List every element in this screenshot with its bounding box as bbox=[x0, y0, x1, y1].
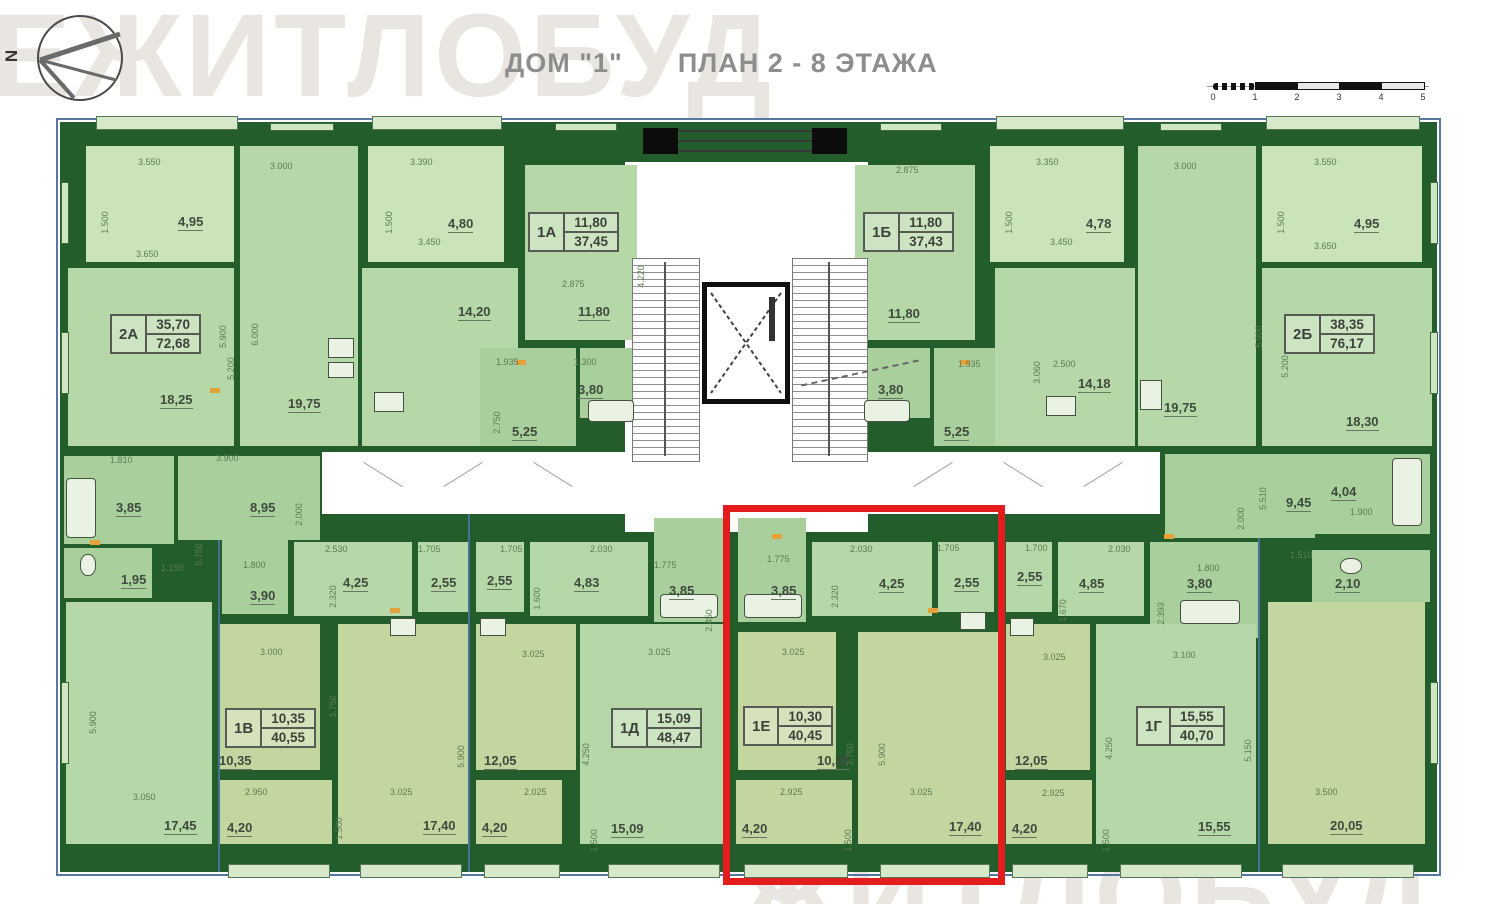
balcony-ledge bbox=[1012, 864, 1088, 878]
dimension-label: 1.500 bbox=[385, 211, 394, 234]
bathtub-icon bbox=[588, 400, 634, 422]
bathtub-icon bbox=[1180, 600, 1240, 624]
toilet-icon bbox=[80, 554, 96, 576]
entrance-canopy bbox=[678, 130, 812, 160]
dimension-label: 4.250 bbox=[582, 743, 591, 766]
north-label: N bbox=[2, 50, 22, 62]
apartment-stat-box: 1Б 11,8037,43 bbox=[863, 212, 954, 252]
room-area: 15,55 bbox=[1171, 708, 1223, 727]
balcony-ledge bbox=[484, 864, 560, 878]
dimension-label: 3.450 bbox=[1050, 238, 1073, 247]
bathtub-icon bbox=[1392, 458, 1422, 526]
dimension-label: 2.030 bbox=[590, 545, 613, 554]
stove-icon bbox=[328, 338, 354, 358]
scale-tick: 2 bbox=[1294, 92, 1299, 102]
scale-bar: 0 1 2 3 4 5 bbox=[1213, 80, 1423, 102]
balcony-ledge bbox=[1266, 116, 1420, 130]
dimension-label: 4.250 bbox=[1105, 737, 1114, 760]
room-area-label: 11,80 bbox=[888, 306, 920, 323]
dimension-label: 2.750 bbox=[493, 411, 502, 434]
dimension-label: 1.900 bbox=[1350, 508, 1373, 517]
apartment-stat-box: 2Б 38,3576,17 bbox=[1284, 314, 1375, 354]
dimension-label: 1.810 bbox=[110, 456, 133, 465]
room-area-label: 10,35 bbox=[219, 753, 252, 770]
apt2b-balcony bbox=[1262, 146, 1422, 262]
room-area-label: 14,18 bbox=[1078, 376, 1111, 393]
fridge-icon bbox=[1140, 380, 1162, 410]
dimension-label: 6.000 bbox=[251, 323, 260, 346]
room-area-label: 20,05 bbox=[1330, 818, 1363, 835]
room-area-label: 4,85 bbox=[1079, 576, 1104, 593]
dimension-label: 2.000 bbox=[295, 503, 304, 526]
room-area-label: 1,95 bbox=[121, 572, 146, 589]
room-area-label: 17,40 bbox=[423, 818, 456, 835]
balcony-ledge bbox=[1120, 864, 1242, 878]
dimension-label: 2.393 bbox=[1157, 602, 1166, 625]
dimension-label: 1.705 bbox=[500, 545, 523, 554]
room-area-label: 17,45 bbox=[164, 818, 197, 835]
room-area: 38,35 bbox=[1321, 316, 1373, 335]
total-area: 48,47 bbox=[648, 729, 700, 746]
courtyard-left bbox=[322, 452, 625, 514]
room-area-label: 3,80 bbox=[878, 382, 903, 399]
room-area: 35,70 bbox=[147, 316, 199, 335]
dimension-label: 5.150 bbox=[1244, 739, 1253, 762]
apartment-id: 2А bbox=[112, 316, 145, 352]
apt1v-bedroom bbox=[220, 624, 320, 770]
dimension-label: 2.530 bbox=[325, 545, 348, 554]
elevator-shaft bbox=[702, 282, 790, 404]
apartment-id: 1Г bbox=[1138, 708, 1169, 744]
dimension-label: 1.700 bbox=[1025, 544, 1048, 553]
balcony-ledge bbox=[360, 864, 462, 878]
scale-tick: 0 bbox=[1210, 92, 1215, 102]
apartment-id: 1Д bbox=[613, 710, 646, 746]
dimension-label: 3.025 bbox=[522, 650, 545, 659]
house-title: ДОМ "1" bbox=[505, 48, 623, 78]
dimension-label: 3.025 bbox=[1043, 653, 1066, 662]
room-area-label: 2,55 bbox=[487, 573, 512, 590]
room-area-label: 2,55 bbox=[1017, 569, 1042, 586]
dimension-label: 1.935 bbox=[958, 360, 981, 369]
balcony-ledge bbox=[608, 864, 720, 878]
apartment-stat-box: 1В 10,3540,55 bbox=[225, 708, 316, 748]
apt1v-living-room bbox=[338, 624, 468, 844]
dimension-label: 1.510 bbox=[1290, 551, 1313, 560]
room-area-label: 18,30 bbox=[1346, 414, 1379, 431]
dimension-label: 1.800 bbox=[243, 561, 266, 570]
scale-dotted-segment bbox=[1213, 83, 1255, 90]
total-area: 37,45 bbox=[565, 233, 617, 250]
room-area-label: 4,20 bbox=[1012, 821, 1037, 838]
dimension-label: 3.350 bbox=[1036, 158, 1059, 167]
dimension-label: 1.500 bbox=[590, 829, 599, 852]
dimension-label: 1.705 bbox=[418, 545, 441, 554]
room-area-label: 9,45 bbox=[1286, 495, 1311, 512]
apartment-id: 2Б bbox=[1286, 316, 1319, 352]
apartment-stat-box: 1Г 15,5540,70 bbox=[1136, 706, 1225, 746]
dimension-label: 2.875 bbox=[896, 166, 919, 175]
room-area-label: 4,20 bbox=[227, 820, 252, 837]
dimension-label: 3.450 bbox=[418, 238, 441, 247]
total-area: 72,68 bbox=[147, 335, 199, 352]
dimension-label: 1.670 bbox=[1059, 599, 1068, 622]
apartment-id: 1Б bbox=[865, 214, 898, 250]
balcony-ledge bbox=[372, 116, 502, 130]
room-area-label: 15,09 bbox=[611, 821, 644, 838]
apt2a-living-room bbox=[68, 268, 234, 446]
dimension-label: 5.900 bbox=[219, 325, 228, 348]
room-area: 10,35 bbox=[262, 710, 314, 729]
balcony-ledge bbox=[228, 864, 330, 878]
dimension-label: 5.900 bbox=[1255, 325, 1264, 348]
room-area-label: 12,05 bbox=[1015, 753, 1048, 770]
dimension-label: 1.300 bbox=[574, 358, 597, 367]
dimension-label: 1.500 bbox=[335, 817, 344, 840]
dimension-label: 1.500 bbox=[1277, 211, 1286, 234]
dimension-label: 5.900 bbox=[89, 711, 98, 734]
dimension-label: 3.050 bbox=[133, 793, 156, 802]
room-area-label: 3,85 bbox=[116, 500, 141, 517]
total-area: 40,70 bbox=[1171, 727, 1223, 744]
dimension-label: 2.450 bbox=[705, 609, 714, 632]
total-area: 40,55 bbox=[262, 729, 314, 746]
room-area-label: 3,90 bbox=[250, 588, 275, 605]
balcony-ledge bbox=[996, 116, 1124, 130]
toilet-icon bbox=[1340, 558, 1362, 574]
stove-icon bbox=[480, 618, 506, 636]
room-area-label: 18,25 bbox=[160, 392, 193, 409]
dimension-label: 5.900 bbox=[457, 745, 466, 768]
dimension-label: 1.500 bbox=[101, 211, 110, 234]
room-area-label: 4,80 bbox=[448, 216, 473, 233]
apartment-stat-box: 1Д 15,0948,47 bbox=[611, 708, 702, 748]
page-title: ДОМ "1"ПЛАН 2 - 8 ЭТАЖА bbox=[505, 48, 993, 79]
room-area-label: 2,55 bbox=[431, 575, 456, 592]
dimension-label: 3.550 bbox=[138, 158, 161, 167]
room-area-label: 4,95 bbox=[178, 214, 203, 231]
stove-icon bbox=[1046, 396, 1076, 416]
apt1g-room bbox=[1006, 624, 1090, 770]
dimension-label: 5.200 bbox=[227, 357, 236, 380]
scale-tick: 5 bbox=[1420, 92, 1425, 102]
room-area: 15,09 bbox=[648, 710, 700, 729]
dimension-label: 3.060 bbox=[1033, 361, 1042, 384]
room-area-label: 15,55 bbox=[1198, 819, 1231, 836]
room-area-label: 5,25 bbox=[944, 424, 969, 441]
dimension-label: 3.500 bbox=[1315, 788, 1338, 797]
apartment-id: 1В bbox=[227, 710, 260, 746]
dimension-label: 1.150 bbox=[161, 564, 184, 573]
dimension-label: 4.220 bbox=[637, 265, 646, 288]
dimension-label: 3.000 bbox=[1174, 162, 1197, 171]
apt1b-kitchen-room bbox=[995, 268, 1135, 446]
dimension-label: 2.320 bbox=[329, 585, 338, 608]
stove-icon bbox=[390, 618, 416, 636]
dimension-label: 1.935 bbox=[496, 358, 519, 367]
dimension-label: 3.100 bbox=[1173, 651, 1196, 660]
dimension-label: 3.550 bbox=[1314, 158, 1337, 167]
room-area-label: 5,25 bbox=[512, 424, 537, 441]
dimension-label: 3.000 bbox=[270, 162, 293, 171]
room-area-label: 12,05 bbox=[484, 753, 517, 770]
apt1d-room bbox=[476, 624, 576, 770]
room-area-label: 19,75 bbox=[288, 396, 321, 413]
stove-icon bbox=[1010, 618, 1034, 636]
apartment-stat-box: 1А 11,8037,45 bbox=[528, 212, 619, 252]
bathtub-icon bbox=[66, 478, 96, 538]
dimension-label: 2.875 bbox=[562, 280, 585, 289]
sink-icon bbox=[328, 362, 354, 378]
room-area-label: 4,83 bbox=[574, 575, 599, 592]
stairs-right bbox=[792, 258, 868, 462]
bathtub-icon bbox=[864, 400, 910, 422]
dimension-label: 1.800 bbox=[1197, 564, 1220, 573]
dimension-label: 1.500 bbox=[1005, 211, 1014, 234]
scale-tick: 3 bbox=[1336, 92, 1341, 102]
balcony-ledge bbox=[96, 116, 238, 130]
dimension-label: 5.750 bbox=[195, 543, 204, 566]
room-area-label: 8,95 bbox=[250, 500, 275, 517]
scale-tick: 1 bbox=[1252, 92, 1257, 102]
room-area-label: 4,04 bbox=[1331, 484, 1356, 501]
dimension-label: 2.030 bbox=[1108, 545, 1131, 554]
dimension-label: 2.500 bbox=[1053, 360, 1076, 369]
room-area: 11,80 bbox=[565, 214, 617, 233]
dimension-label: 5.510 bbox=[1259, 487, 1268, 510]
dimension-label: 3.025 bbox=[390, 788, 413, 797]
dimension-label: 3.390 bbox=[410, 158, 433, 167]
highlighted-apartment-outline bbox=[723, 505, 1005, 885]
room-area: 11,80 bbox=[900, 214, 952, 233]
right-wc bbox=[1312, 550, 1430, 602]
dimension-label: 2.950 bbox=[245, 788, 268, 797]
room-area-label: 4,78 bbox=[1086, 216, 1111, 233]
dimension-label: 1.600 bbox=[533, 587, 542, 610]
stairs-left bbox=[632, 258, 700, 462]
total-area: 37,43 bbox=[900, 233, 952, 250]
room-area-label: 2,10 bbox=[1335, 576, 1360, 593]
dimension-label: 2.025 bbox=[524, 788, 547, 797]
room-area-label: 19,75 bbox=[1164, 400, 1197, 417]
room-area-label: 11,80 bbox=[578, 304, 610, 321]
room-area-label: 4,95 bbox=[1354, 216, 1379, 233]
dimension-label: 2.925 bbox=[1042, 789, 1065, 798]
dimension-label: 2.000 bbox=[1237, 507, 1246, 530]
plan-title: ПЛАН 2 - 8 ЭТАЖА bbox=[678, 48, 938, 78]
room-area-label: 4,20 bbox=[482, 820, 507, 837]
floor-plan-page: ЕЖИТЛОБУД ЖИТЛОБУД N ДОМ "1"ПЛАН 2 - 8 Э… bbox=[0, 0, 1490, 904]
total-area: 76,17 bbox=[1321, 335, 1373, 352]
dimension-label: 3.750 bbox=[329, 695, 338, 718]
dimension-label: 3.650 bbox=[1314, 242, 1337, 251]
balcony-ledge bbox=[1282, 864, 1414, 878]
room-area-label: 4,25 bbox=[343, 575, 368, 592]
room-area-label: 3,80 bbox=[1187, 576, 1212, 593]
dimension-label: 3.900 bbox=[216, 454, 239, 463]
dimension-label: 3.650 bbox=[136, 250, 159, 259]
dimension-label: 3.000 bbox=[260, 648, 283, 657]
room-area-label: 14,20 bbox=[458, 304, 491, 321]
dimension-label: 3.025 bbox=[648, 648, 671, 657]
apartment-stat-box: 2А 35,7072,68 bbox=[110, 314, 201, 354]
north-compass-icon: N bbox=[28, 8, 128, 113]
room-area-label: 3,80 bbox=[578, 382, 603, 399]
right-corner-room bbox=[1268, 602, 1425, 844]
scale-tick: 4 bbox=[1378, 92, 1383, 102]
dimension-label: 1.500 bbox=[1102, 829, 1111, 852]
dimension-label: 5.200 bbox=[1281, 355, 1290, 378]
apartment-id: 1А bbox=[530, 214, 563, 250]
room-area-label: 3,85 bbox=[669, 583, 694, 600]
stove-icon bbox=[374, 392, 404, 412]
dimension-label: 1.775 bbox=[654, 561, 677, 570]
